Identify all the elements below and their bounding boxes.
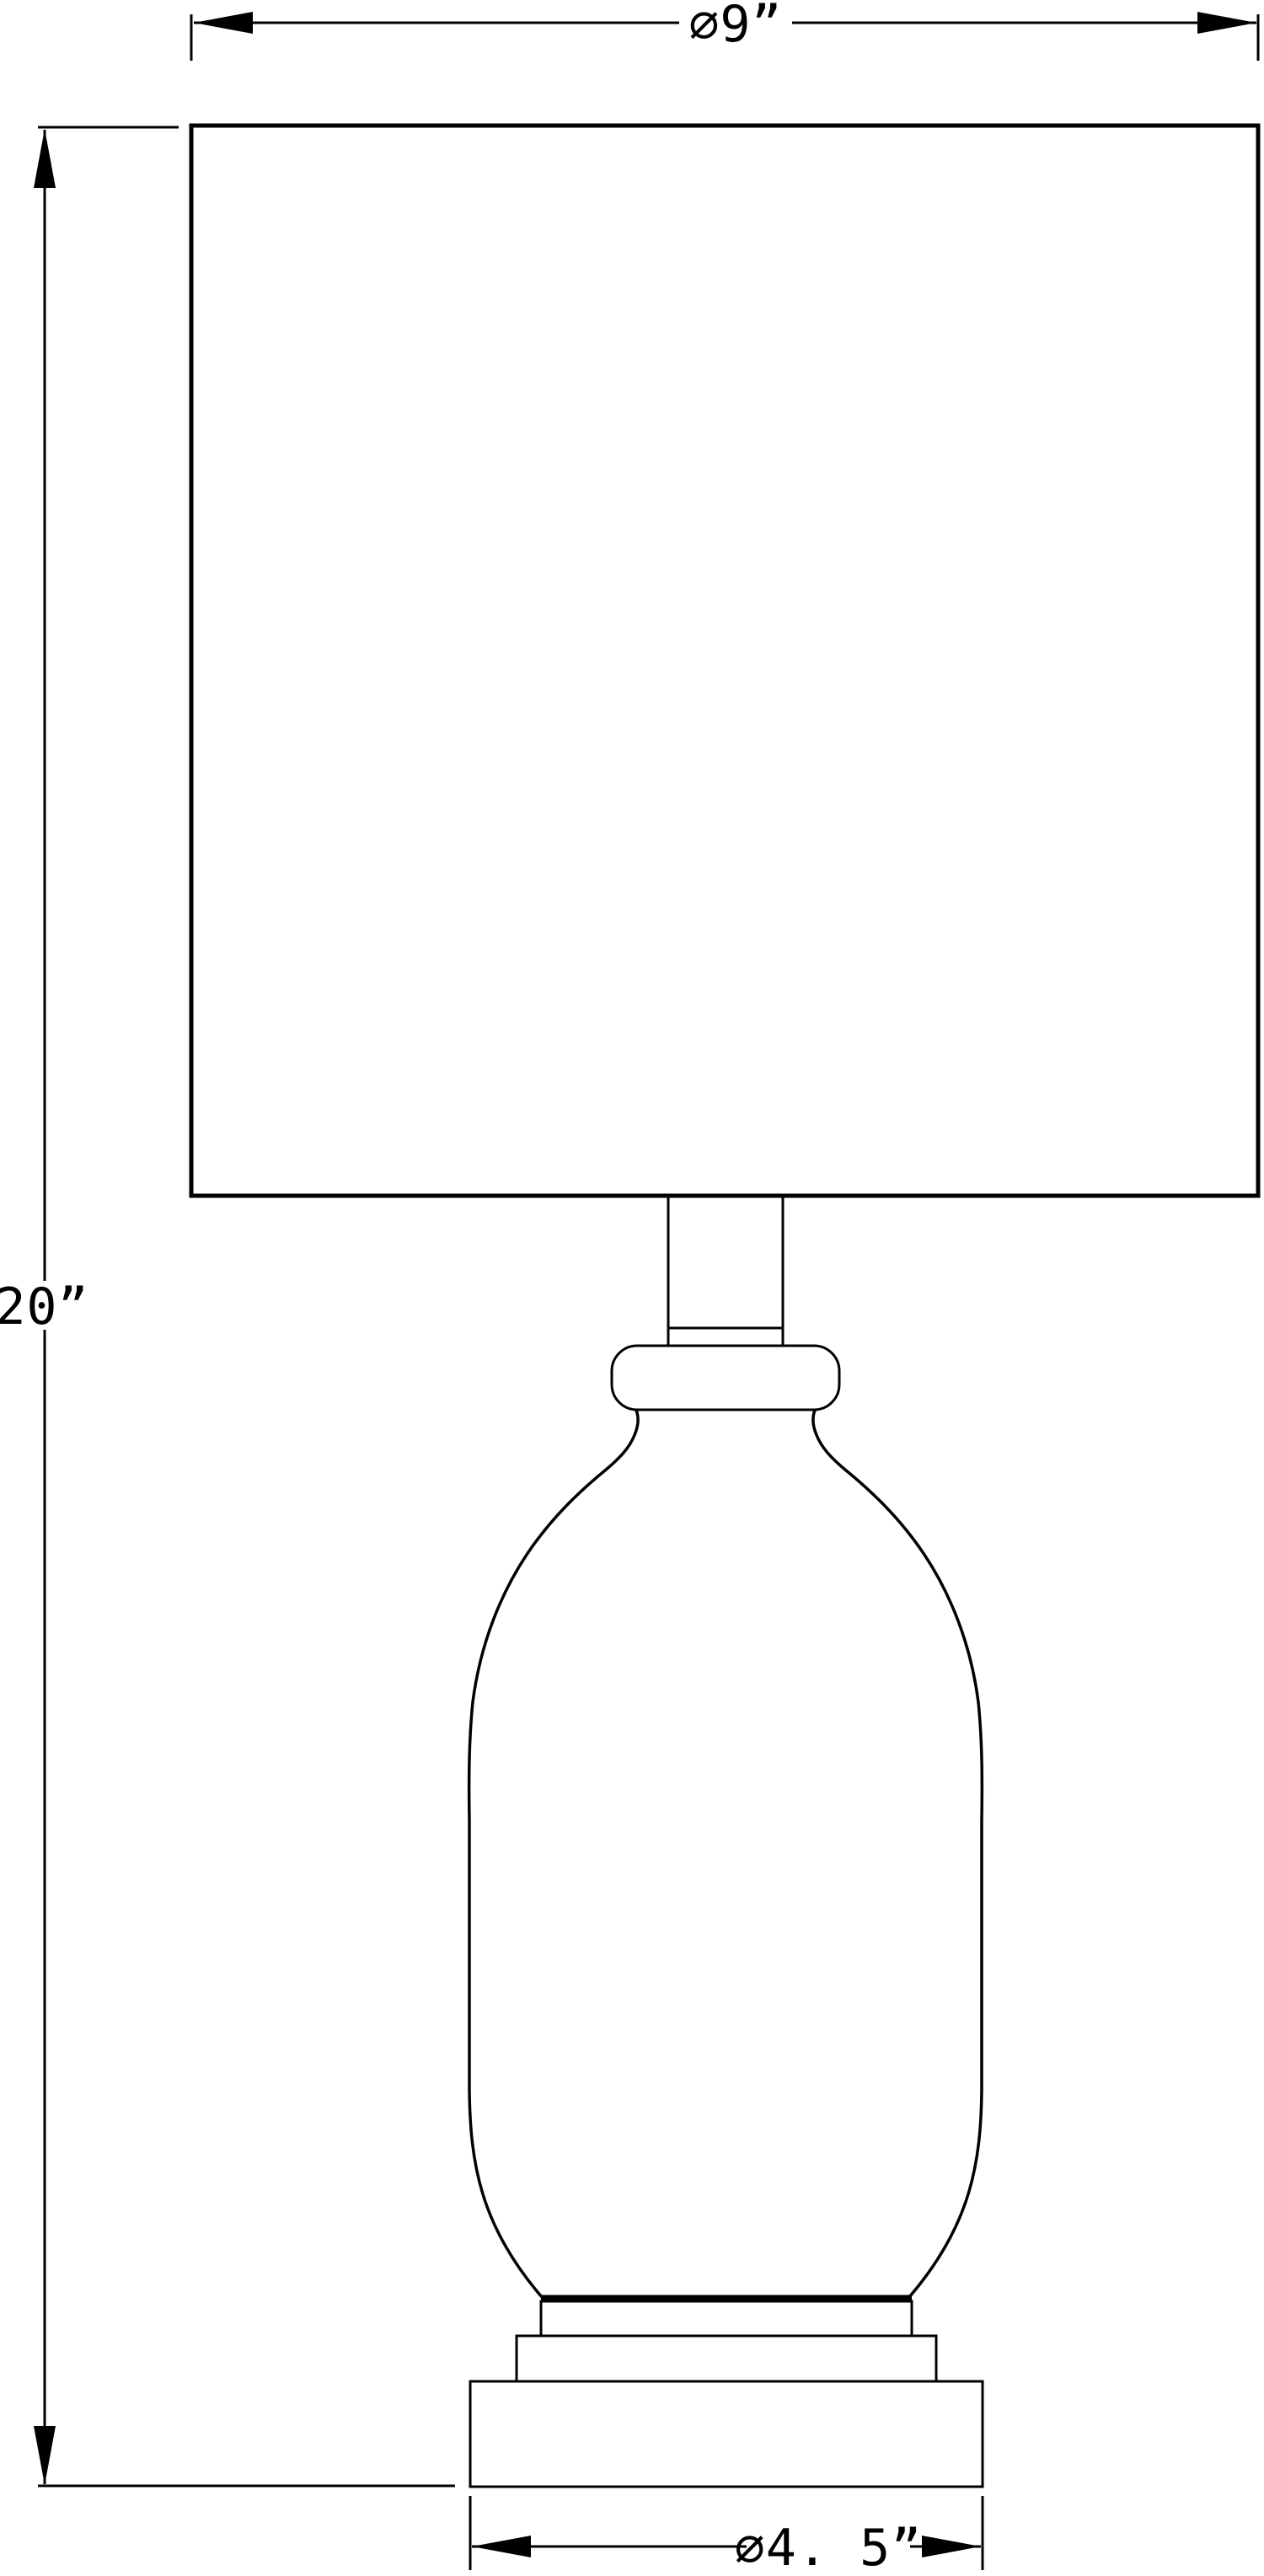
base-step-bottom [470,2381,983,2487]
lamp-technical-drawing: ∅9” 20” ∅4. 5” [0,0,1264,2576]
lamp-body [469,1406,983,2297]
dimension-shade-diameter: ∅9” [191,0,1258,61]
base-step-top [541,2301,912,2336]
base-diameter-label: ∅4. 5” [735,2519,923,2576]
body-left-outline [469,1406,638,2297]
drawing-canvas: ∅9” 20” ∅4. 5” [0,0,1264,2576]
arrowhead-left-icon [194,12,253,34]
shade-diameter-label: ∅9” [688,0,782,54]
overall-height-label: 20” [0,1277,89,1336]
drawing-root: ∅9” 20” ∅4. 5” [0,0,1258,2576]
arrowhead-up-icon [34,129,56,188]
lamp-collar [612,1346,839,1410]
arrowhead-right-icon [1197,12,1256,34]
arrowhead-right-icon [922,2536,981,2557]
body-right-outline [813,1406,982,2297]
lamp-stem [668,1197,783,1347]
lamp-base [470,2298,983,2487]
arrowhead-down-icon [34,2426,56,2485]
arrowhead-left-icon [472,2536,531,2557]
dimension-base-diameter: ∅4. 5” [470,2496,983,2576]
lamp-shade-outline [191,126,1258,1196]
base-step-middle [517,2336,936,2381]
